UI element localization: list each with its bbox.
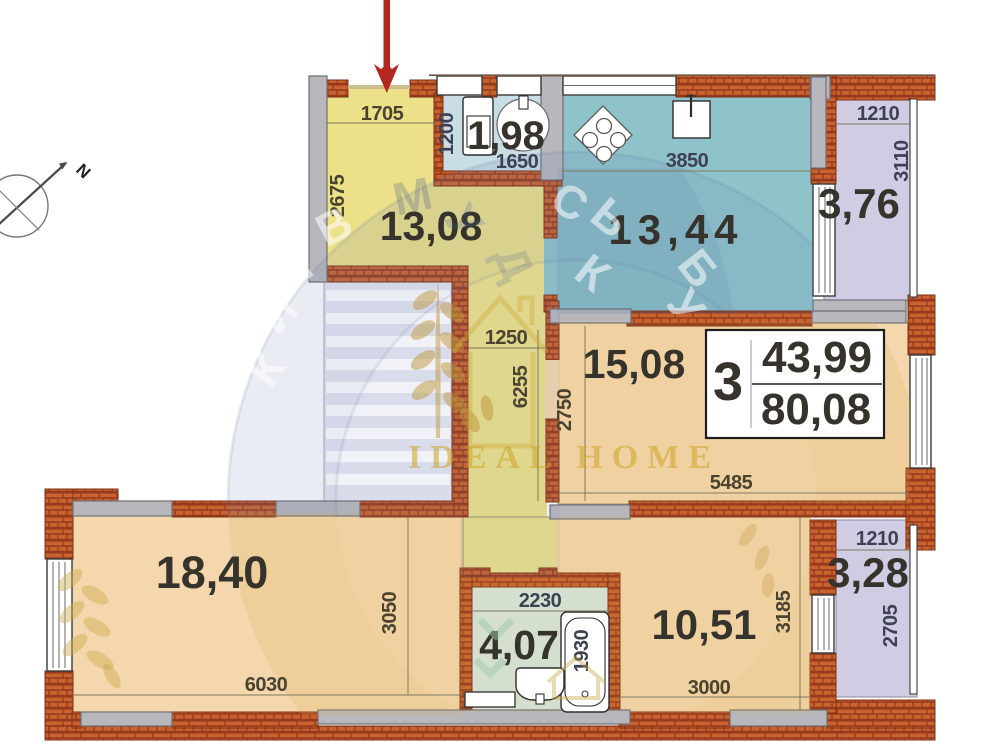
svg-text:3185: 3185	[773, 590, 795, 633]
svg-text:2750: 2750	[554, 388, 576, 431]
svg-text:1200: 1200	[436, 112, 458, 155]
svg-text:1930: 1930	[571, 629, 593, 672]
svg-text:6255: 6255	[510, 365, 532, 408]
svg-text:3850: 3850	[666, 150, 709, 172]
svg-text:2230: 2230	[519, 590, 562, 612]
svg-text:3110: 3110	[891, 140, 913, 182]
svg-text:3: 3	[713, 352, 743, 412]
svg-text:10,51: 10,51	[651, 601, 756, 648]
svg-text:15,08: 15,08	[583, 341, 686, 387]
svg-text:3,76: 3,76	[818, 180, 900, 227]
svg-text:1210: 1210	[856, 528, 899, 550]
svg-text:18,40: 18,40	[156, 547, 269, 598]
svg-text:1705: 1705	[361, 103, 404, 125]
svg-text:3,28: 3,28	[827, 549, 909, 596]
svg-text:IDEAL HOME: IDEAL HOME	[408, 439, 720, 476]
svg-text:6030: 6030	[245, 674, 288, 696]
svg-text:2705: 2705	[880, 604, 902, 647]
svg-text:3050: 3050	[379, 591, 401, 634]
svg-text:80,08: 80,08	[761, 385, 871, 434]
svg-text:1650: 1650	[496, 151, 539, 173]
svg-text:1250: 1250	[485, 327, 528, 349]
svg-text:3000: 3000	[688, 677, 731, 699]
svg-text:1210: 1210	[857, 103, 900, 125]
svg-text:43,99: 43,99	[762, 333, 872, 382]
